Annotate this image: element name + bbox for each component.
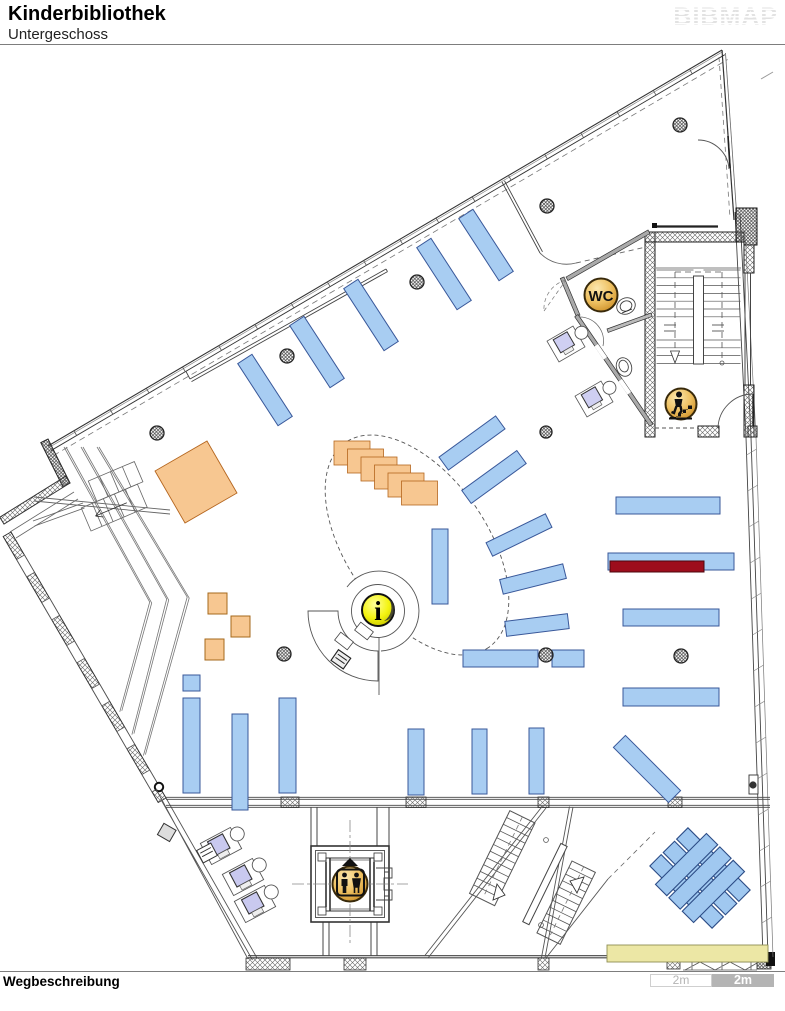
svg-text:i: i	[374, 596, 382, 626]
svg-text:WC: WC	[589, 288, 614, 305]
